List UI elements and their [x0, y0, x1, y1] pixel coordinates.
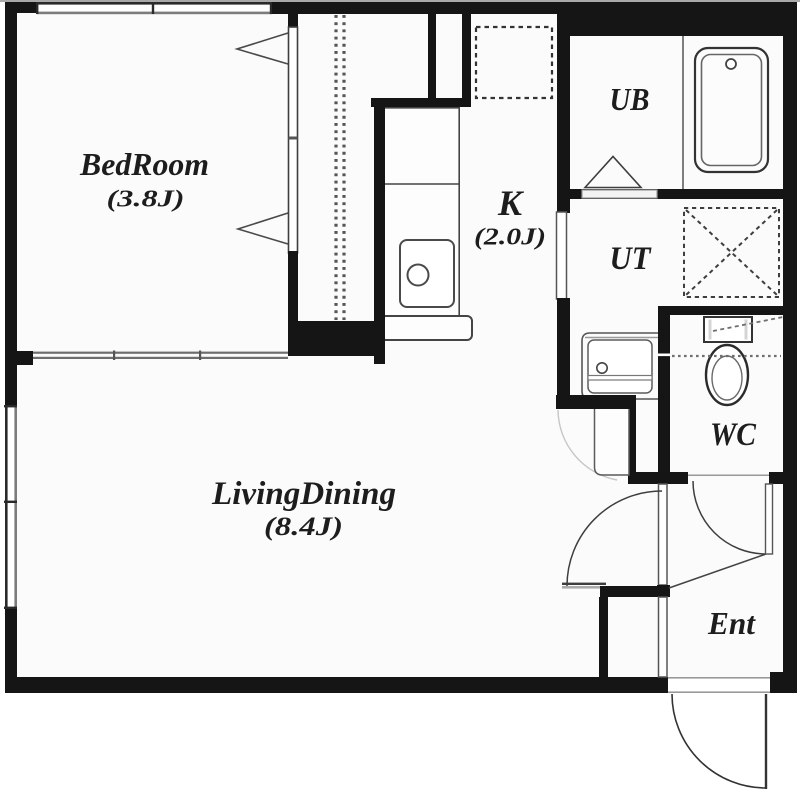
- svg-text:UT: UT: [610, 241, 653, 277]
- svg-text:UB: UB: [610, 81, 650, 117]
- svg-text:(3.8J): (3.8J): [107, 187, 185, 213]
- svg-text:WC: WC: [710, 417, 757, 453]
- svg-text:K: K: [497, 183, 525, 223]
- svg-text:Ent: Ent: [707, 605, 756, 641]
- svg-text:(2.0J): (2.0J): [474, 225, 546, 251]
- svg-text:BedRoom: BedRoom: [79, 146, 209, 182]
- svg-text:(8.4J): (8.4J): [264, 512, 343, 541]
- svg-text:LivingDining: LivingDining: [211, 476, 396, 512]
